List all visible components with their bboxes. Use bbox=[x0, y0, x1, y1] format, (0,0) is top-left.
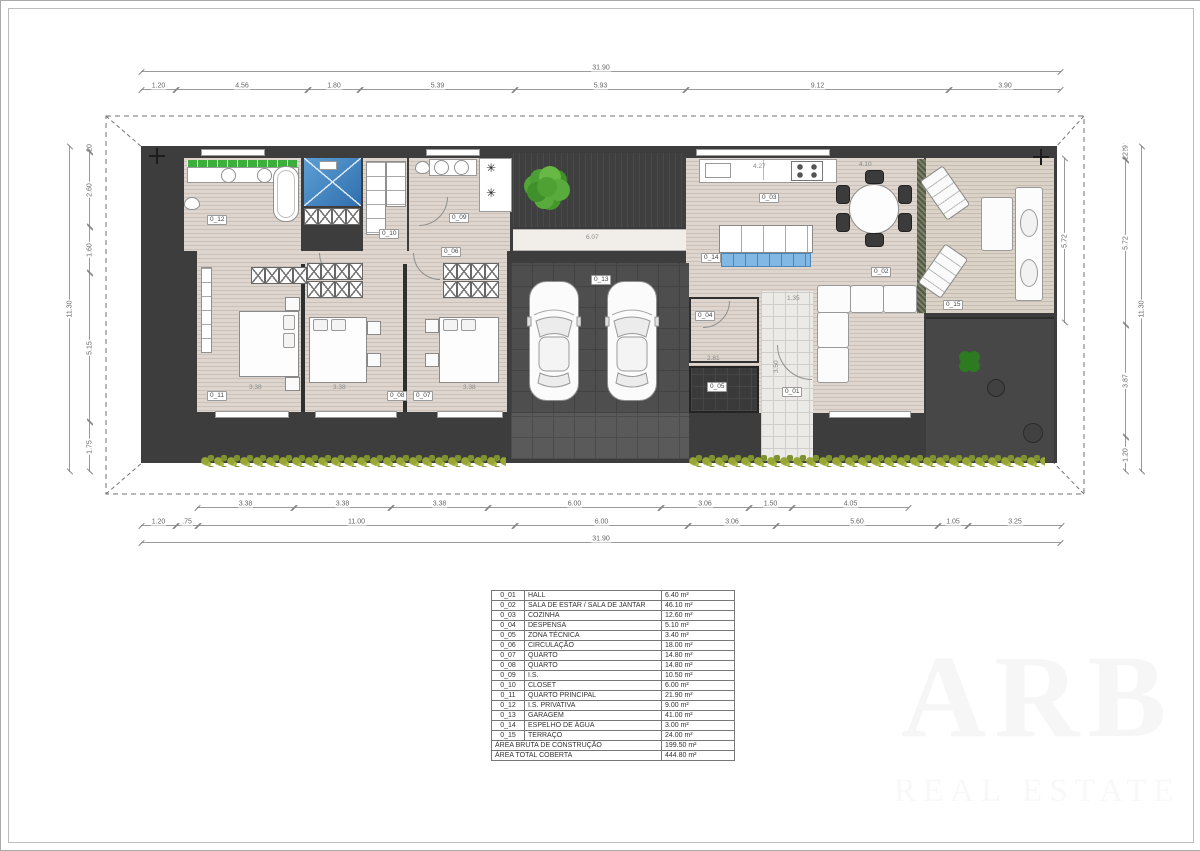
dimension-segment: 11.30 bbox=[1141, 146, 1142, 472]
dimension-segment: 9.12 bbox=[686, 89, 949, 90]
room-label: 0_12 bbox=[207, 215, 227, 225]
area-cell: 6.40 m² bbox=[662, 591, 735, 601]
area-total-row: ÁREA BRUTA DE CONSTRUÇÃO199.50 m² bbox=[492, 741, 735, 751]
area-cell: 0_03 bbox=[492, 611, 525, 621]
window bbox=[696, 149, 830, 156]
area-cell: QUARTO PRINCIPAL bbox=[525, 691, 662, 701]
area-cell: 3.40 m² bbox=[662, 631, 735, 641]
area-cell: 14.80 m² bbox=[662, 661, 735, 671]
area-cell: 5.10 m² bbox=[662, 621, 735, 631]
hedge bbox=[201, 455, 506, 467]
wardrobe-icon bbox=[443, 263, 457, 280]
wardrobe-icon bbox=[349, 281, 363, 298]
wardrobe-icon bbox=[471, 281, 485, 298]
window bbox=[426, 149, 480, 156]
pillow bbox=[283, 333, 295, 348]
shower-head-icon: ✳ bbox=[486, 187, 496, 199]
interior-dimension: 3.50 bbox=[773, 360, 780, 373]
area-row: 0_02SALA DE ESTAR / SALA DE JANTAR46.10 … bbox=[492, 601, 735, 611]
area-row: 0_12I.S. PRIVATIVA9.00 m² bbox=[492, 701, 735, 711]
coffee-table bbox=[981, 197, 1013, 251]
dining-table bbox=[849, 184, 899, 234]
area-cell: 18.00 m² bbox=[662, 641, 735, 651]
dimension-segment: 4.05 bbox=[792, 507, 909, 508]
window bbox=[315, 411, 397, 418]
window bbox=[437, 411, 503, 418]
nightstand bbox=[425, 319, 439, 333]
area-row: 0_07QUARTO14.80 m² bbox=[492, 651, 735, 661]
kitchen-island bbox=[719, 225, 813, 253]
room-label: 0_09 bbox=[449, 213, 469, 223]
room-label: 0_08 bbox=[387, 391, 407, 401]
area-cell: 0_14 bbox=[492, 721, 525, 731]
room-label: 0_11 bbox=[207, 391, 227, 401]
tree-icon bbox=[537, 177, 557, 197]
dimension-segment: 11.00 bbox=[198, 525, 515, 526]
dimension-segment: 3.87 bbox=[1125, 325, 1126, 437]
room-label: 0_01 bbox=[782, 387, 802, 397]
chair bbox=[836, 185, 850, 204]
survey-cross-icon bbox=[149, 148, 165, 164]
pillow bbox=[331, 319, 346, 331]
window bbox=[829, 411, 911, 418]
chair bbox=[865, 170, 884, 184]
area-cell: COZINHA bbox=[525, 611, 662, 621]
wardrobe-icon bbox=[332, 208, 346, 225]
closet-strip bbox=[201, 267, 212, 353]
dimension-segment: 3.38 bbox=[294, 507, 391, 508]
dimension-segment: 3.90 bbox=[949, 89, 1061, 90]
area-cell: 12.60 m² bbox=[662, 611, 735, 621]
dimension-segment: 1.60 bbox=[89, 227, 90, 273]
dimension-segment: 31.90 bbox=[141, 71, 1061, 72]
toilet bbox=[415, 161, 430, 174]
wardrobe-icon bbox=[485, 281, 499, 298]
dimension-segment: 11.30 bbox=[69, 146, 70, 472]
window bbox=[201, 149, 265, 156]
area-cell: 0_06 bbox=[492, 641, 525, 651]
room-label: 0_15 bbox=[943, 300, 963, 310]
car bbox=[605, 279, 659, 403]
area-total-label: ÁREA BRUTA DE CONSTRUÇÃO bbox=[492, 741, 662, 751]
interior-dimension: 2.81 bbox=[707, 355, 720, 362]
area-cell: 0_15 bbox=[492, 731, 525, 741]
dimension-segment: 3.06 bbox=[661, 507, 749, 508]
area-cell: I.S. bbox=[525, 671, 662, 681]
area-total-value: 199.50 m² bbox=[662, 741, 735, 751]
closet-shelves bbox=[386, 161, 406, 207]
area-cell: CLOSET bbox=[525, 681, 662, 691]
wardrobe-icon bbox=[485, 263, 499, 280]
area-total-row: ÁREA TOTAL COBERTA444.80 m² bbox=[492, 751, 735, 761]
area-cell: 0_02 bbox=[492, 601, 525, 611]
area-cell: HALL bbox=[525, 591, 662, 601]
area-row: 0_06CIRCULAÇÃO18.00 m² bbox=[492, 641, 735, 651]
dimension-segment: 1.20 bbox=[141, 525, 176, 526]
wardrobe-icon bbox=[307, 281, 321, 298]
area-cell: DESPENSA bbox=[525, 621, 662, 631]
area-cell: 0_04 bbox=[492, 621, 525, 631]
wardrobe-icon bbox=[346, 208, 360, 225]
area-cell: 46.10 m² bbox=[662, 601, 735, 611]
interior-dimension: 1.35 bbox=[787, 295, 800, 302]
dimension-segment: 5.93 bbox=[515, 89, 686, 90]
chair bbox=[836, 213, 850, 232]
wardrobe-icon bbox=[307, 263, 321, 280]
area-row: 0_13GARAGEM41.00 m² bbox=[492, 711, 735, 721]
shower-fixture bbox=[319, 161, 337, 170]
area-cell: I.S. PRIVATIVA bbox=[525, 701, 662, 711]
wardrobe-icon bbox=[457, 281, 471, 298]
area-cell: ESPELHO DE ÁGUA bbox=[525, 721, 662, 731]
person bbox=[1020, 209, 1038, 237]
sink bbox=[257, 168, 272, 183]
nightstand bbox=[425, 353, 439, 367]
shower-head-icon: ✳ bbox=[486, 162, 496, 174]
dimension-segment: 1.20 bbox=[141, 89, 176, 90]
area-cell: 21.90 m² bbox=[662, 691, 735, 701]
watermark-subtitle: REAL ESTATE bbox=[894, 773, 1181, 810]
dimension-segment: 6.00 bbox=[515, 525, 688, 526]
entry-walkway bbox=[513, 229, 691, 251]
nightstand bbox=[367, 321, 381, 335]
window bbox=[215, 411, 289, 418]
area-cell: 0_13 bbox=[492, 711, 525, 721]
area-cell: 14.80 m² bbox=[662, 651, 735, 661]
area-cell: 0_09 bbox=[492, 671, 525, 681]
wall bbox=[403, 264, 407, 412]
dimension-segment: 5.39 bbox=[360, 89, 515, 90]
sofa-module bbox=[883, 285, 917, 313]
wardrobe-icon bbox=[318, 208, 332, 225]
area-cell: 3.00 m² bbox=[662, 721, 735, 731]
area-row: 0_01HALL6.40 m² bbox=[492, 591, 735, 601]
watermark-logo: ARB bbox=[901, 629, 1174, 765]
shrub-icon bbox=[1023, 423, 1043, 443]
sofa-module bbox=[817, 312, 849, 348]
nightstand bbox=[285, 377, 300, 391]
area-cell: QUARTO bbox=[525, 651, 662, 661]
dimension-segment: 5.72 bbox=[1064, 158, 1065, 323]
area-cell: QUARTO bbox=[525, 661, 662, 671]
area-row: 0_05ZONA TÉCNICA3.40 m² bbox=[492, 631, 735, 641]
chair bbox=[865, 233, 884, 247]
interior-dimension: 4.27 bbox=[753, 163, 766, 170]
wardrobe-icon bbox=[443, 281, 457, 298]
shrub-icon bbox=[959, 351, 971, 363]
dimension-segment: 3.06 bbox=[688, 525, 776, 526]
wardrobe-icon bbox=[304, 208, 318, 225]
sink bbox=[221, 168, 236, 183]
area-cell: 0_11 bbox=[492, 691, 525, 701]
chair bbox=[898, 185, 912, 204]
sofa-module bbox=[850, 285, 884, 313]
room-label: 0_06 bbox=[441, 247, 461, 257]
area-cell: 9.00 m² bbox=[662, 701, 735, 711]
wardrobe-icon bbox=[335, 281, 349, 298]
interior-dimension: 3.38 bbox=[249, 384, 262, 391]
sink bbox=[454, 160, 469, 175]
room-label: 0_02 bbox=[871, 267, 891, 277]
wardrobe-icon bbox=[335, 263, 349, 280]
area-row: 0_14ESPELHO DE ÁGUA3.00 m² bbox=[492, 721, 735, 731]
dimension-segment: 2.60 bbox=[89, 152, 90, 227]
sofa-module bbox=[817, 285, 851, 313]
toilet bbox=[184, 197, 200, 210]
dimension-segment: 3.38 bbox=[197, 507, 294, 508]
area-cell: 0_05 bbox=[492, 631, 525, 641]
wardrobe-icon bbox=[279, 267, 293, 284]
room-label: 0_05 bbox=[707, 382, 727, 392]
area-row: 0_03COZINHA12.60 m² bbox=[492, 611, 735, 621]
interior-dimension: 3.38 bbox=[463, 384, 476, 391]
survey-cross-icon bbox=[1033, 149, 1049, 165]
room-label: 0_14 bbox=[701, 253, 721, 263]
dimension-segment: 5.15 bbox=[89, 273, 90, 422]
area-total-value: 444.80 m² bbox=[662, 751, 735, 761]
dimension-segment: 1.75 bbox=[89, 422, 90, 472]
area-row: 0_04DESPENSA5.10 m² bbox=[492, 621, 735, 631]
area-row: 0_15TERRAÇO24.00 m² bbox=[492, 731, 735, 741]
person bbox=[1020, 259, 1038, 287]
nightstand bbox=[367, 353, 381, 367]
dimension-segment: 3.38 bbox=[391, 507, 488, 508]
room-label: 0_07 bbox=[413, 391, 433, 401]
interior-dimension: 6.07 bbox=[586, 234, 599, 241]
room-label: 0_04 bbox=[695, 311, 715, 321]
area-total-label: ÁREA TOTAL COBERTA bbox=[492, 751, 662, 761]
interior-dimension: 4.10 bbox=[859, 161, 872, 168]
pillow bbox=[461, 319, 476, 331]
pillow bbox=[313, 319, 328, 331]
drawing-sheet: ✳ ✳ bbox=[0, 0, 1200, 851]
wall bbox=[301, 264, 305, 412]
area-cell: CIRCULAÇÃO bbox=[525, 641, 662, 651]
dimension-segment: 1.05 bbox=[938, 525, 968, 526]
wardrobe-icon bbox=[349, 263, 363, 280]
area-cell: 10.50 m² bbox=[662, 671, 735, 681]
car bbox=[527, 279, 581, 403]
driveway bbox=[511, 413, 689, 459]
area-cell: GARAGEM bbox=[525, 711, 662, 721]
wardrobe-icon bbox=[293, 267, 307, 284]
sink bbox=[434, 160, 449, 175]
area-row: 0_10CLOSET6.00 m² bbox=[492, 681, 735, 691]
wardrobe-icon bbox=[457, 263, 471, 280]
dimension-segment: 1.20 bbox=[1125, 437, 1126, 472]
stove bbox=[791, 161, 823, 181]
water-mirror bbox=[721, 253, 811, 267]
hedge bbox=[689, 455, 1045, 467]
area-cell: TERRAÇO bbox=[525, 731, 662, 741]
area-cell: 0_10 bbox=[492, 681, 525, 691]
room-label: 0_13 bbox=[591, 275, 611, 285]
area-row: 0_08QUARTO14.80 m² bbox=[492, 661, 735, 671]
bathtub bbox=[273, 166, 299, 222]
area-row: 0_11QUARTO PRINCIPAL21.90 m² bbox=[492, 691, 735, 701]
interior-dimension: 3.38 bbox=[333, 384, 346, 391]
wardrobe-icon bbox=[471, 263, 485, 280]
dimension-segment: 31.90 bbox=[141, 542, 1061, 543]
wardrobe-icon bbox=[265, 267, 279, 284]
dimension-segment: 5.60 bbox=[776, 525, 938, 526]
room-label: 0_10 bbox=[379, 229, 399, 239]
area-cell: ZONA TÉCNICA bbox=[525, 631, 662, 641]
pillow bbox=[443, 319, 458, 331]
area-cell: 0_07 bbox=[492, 651, 525, 661]
pillow bbox=[283, 315, 295, 330]
closet-shelves bbox=[366, 161, 386, 235]
kitchen-sink bbox=[705, 163, 731, 178]
nightstand bbox=[285, 297, 300, 311]
wardrobe-icon bbox=[321, 263, 335, 280]
dimension-segment: .75 bbox=[176, 525, 198, 526]
chair bbox=[898, 213, 912, 232]
wardrobe-icon bbox=[251, 267, 265, 284]
shrub-icon bbox=[987, 379, 1005, 397]
area-cell: 0_08 bbox=[492, 661, 525, 671]
dimension-segment: 3.25 bbox=[968, 525, 1062, 526]
dimension-segment: 6.00 bbox=[488, 507, 661, 508]
dimension-segment: 1.80 bbox=[308, 89, 360, 90]
dimension-segment: 5.72 bbox=[1125, 160, 1126, 325]
dimension-segment: 1.50 bbox=[749, 507, 792, 508]
wardrobe-icon bbox=[321, 281, 335, 298]
sofa-module bbox=[817, 347, 849, 383]
area-cell: 24.00 m² bbox=[662, 731, 735, 741]
areas-table: 0_01HALL6.40 m²0_02SALA DE ESTAR / SALA … bbox=[491, 590, 735, 761]
area-cell: SALA DE ESTAR / SALA DE JANTAR bbox=[525, 601, 662, 611]
area-cell: 0_01 bbox=[492, 591, 525, 601]
area-cell: 41.00 m² bbox=[662, 711, 735, 721]
area-cell: 6.00 m² bbox=[662, 681, 735, 691]
room-label: 0_03 bbox=[759, 193, 779, 203]
area-row: 0_09I.S.10.50 m² bbox=[492, 671, 735, 681]
dimension-segment: 4.56 bbox=[176, 89, 308, 90]
area-cell: 0_12 bbox=[492, 701, 525, 711]
